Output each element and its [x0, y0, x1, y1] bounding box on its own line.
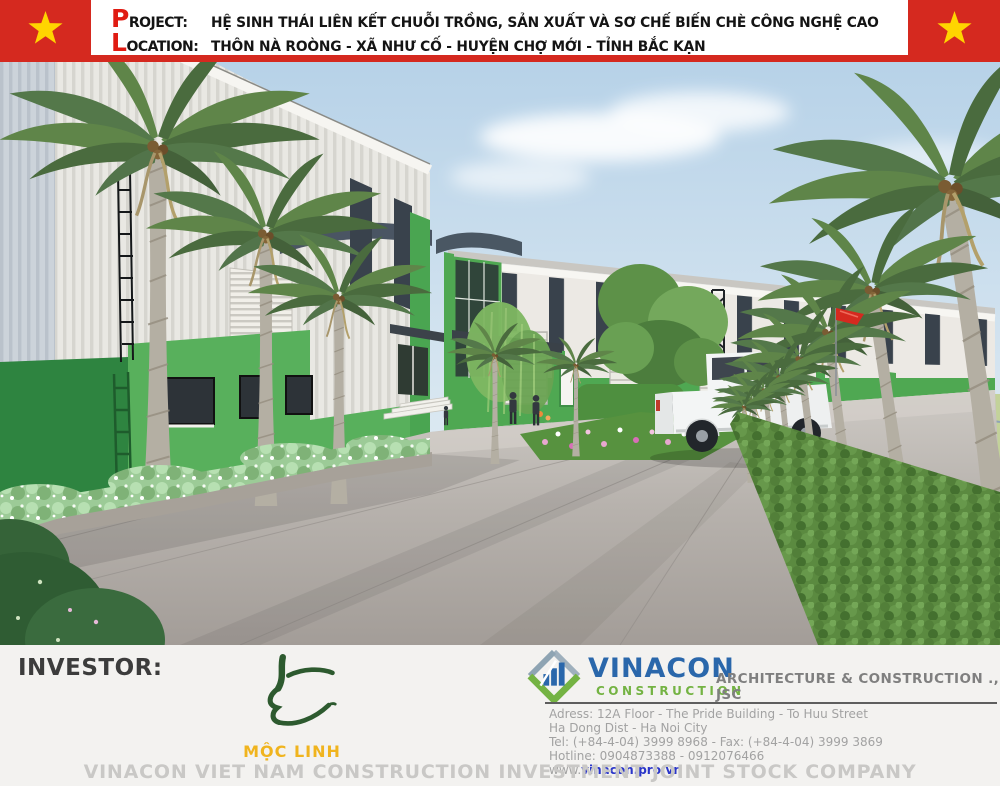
moc-linh-logo: MỘC LINH — [232, 651, 352, 761]
project-row: PROJECT: HỆ SINH THÁI LIÊN KẾT CHUỖI TRỒ… — [111, 4, 908, 28]
company-name-line: VINACON VIET NAM CONSTRUCTION INVESTMENT… — [0, 761, 1000, 783]
header-title-band: PROJECT: HỆ SINH THÁI LIÊN KẾT CHUỖI TRỒ… — [91, 0, 908, 55]
vietnam-flag-right-icon — [909, 0, 1000, 55]
vinacon-tagline: ARCHITECTURE & CONSTRUCTION ., JSC — [716, 671, 1000, 703]
location-label-rest: OCATION: — [126, 39, 198, 55]
location-value: THÔN NÀ ROÒNG - XÃ NHƯ CỐ - HUYỆN CHỢ MỚ… — [211, 39, 705, 55]
investor-label: INVESTOR: — [18, 655, 163, 681]
address-line: Adress: 12A Floor - The Pride Building -… — [549, 707, 883, 721]
vietnam-flag-left-icon — [0, 0, 91, 55]
location-row: LOCATION: THÔN NÀ ROÒNG - XÃ NHƯ CỐ - HU… — [111, 28, 908, 52]
header-banner: PROJECT: HỆ SINH THÁI LIÊN KẾT CHUỖI TRỒ… — [0, 0, 1000, 62]
architectural-rendering — [0, 62, 1000, 645]
address-line: Ha Dong Dist - Ha Noi City — [549, 721, 883, 735]
vinacon-diamond-icon — [526, 649, 582, 703]
footer-divider — [545, 702, 997, 704]
moc-linh-name: MỘC LINH — [232, 742, 352, 761]
location-label: LOCATION: — [111, 28, 211, 57]
presentation-board: PROJECT: HỆ SINH THÁI LIÊN KẾT CHUỖI TRỒ… — [0, 0, 1000, 786]
project-value: HỆ SINH THÁI LIÊN KẾT CHUỖI TRỒNG, SẢN X… — [211, 15, 879, 31]
location-label-initial: L — [111, 28, 126, 57]
moc-linh-glyph-icon — [246, 651, 338, 737]
flag-right-svg — [909, 0, 1000, 55]
flag-left-svg — [0, 0, 91, 55]
footer: INVESTOR: MỘC LINH — [0, 645, 1000, 786]
vinacon-logo: VINACON CONSTRUCTION — [526, 649, 745, 703]
address-line: Tel: (+84-4-04) 3999 8968 - Fax: (+84-4-… — [549, 735, 883, 749]
